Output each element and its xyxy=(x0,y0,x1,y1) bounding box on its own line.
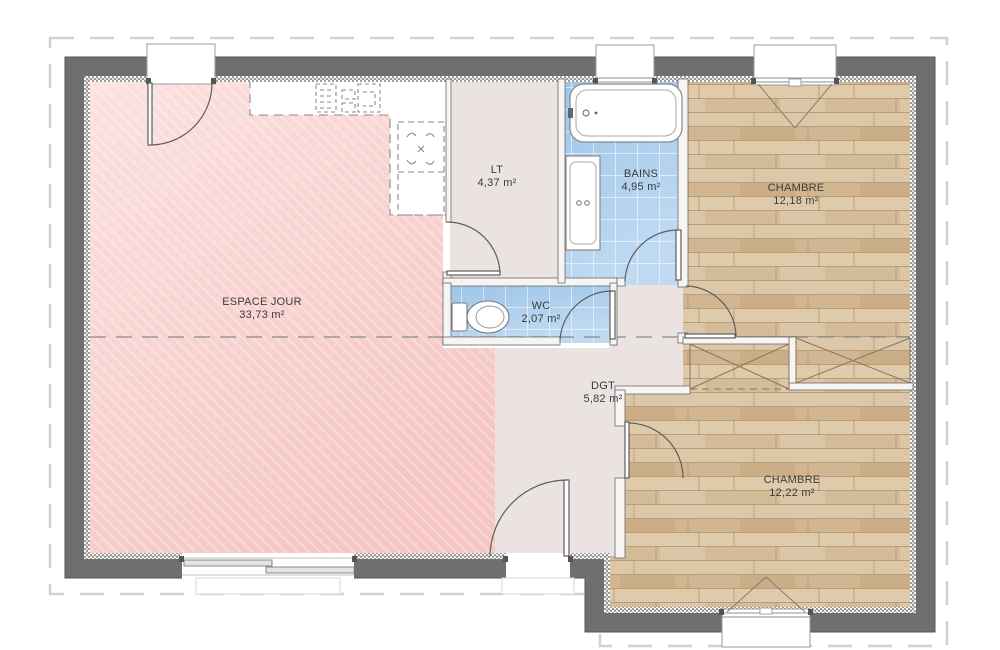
room-label-chambre-1: CHAMBRE 12,18 m² xyxy=(768,182,825,208)
room-area: 5,82 m² xyxy=(583,393,622,406)
fridge-symbol xyxy=(398,122,444,215)
room-area: 2,07 m² xyxy=(521,313,560,326)
room-area: 12,18 m² xyxy=(768,195,825,208)
chambre2-window xyxy=(722,609,810,647)
room-label-bains: BAINS 4,95 m² xyxy=(621,168,660,194)
room-name: CHAMBRE xyxy=(768,182,825,195)
floor-chambre-2 xyxy=(607,390,913,610)
room-name: LT xyxy=(477,164,516,177)
room-label-dgt: DGT 5,82 m² xyxy=(583,380,622,406)
room-label-chambre-2: CHAMBRE 12,22 m² xyxy=(764,474,821,500)
room-name: WC xyxy=(521,300,560,313)
bathtub xyxy=(568,84,682,142)
room-area: 33,73 m² xyxy=(222,309,302,322)
bay-threshold xyxy=(196,578,340,594)
toilet xyxy=(452,301,509,333)
room-area: 4,37 m² xyxy=(477,177,516,190)
entrance-opening xyxy=(147,44,215,84)
bay-sliding-panel-2 xyxy=(266,567,354,573)
kitchen-counter xyxy=(316,84,380,112)
floor-plan: ESPACE JOUR 33,73 m² LT 4,37 m² BAINS 4,… xyxy=(0,0,1000,650)
room-label-espace-jour: ESPACE JOUR 33,73 m² xyxy=(222,296,302,322)
dgt-threshold xyxy=(502,578,574,594)
room-label-lt: LT 4,37 m² xyxy=(477,164,516,190)
floor-plan-drawing xyxy=(0,0,1000,650)
room-area: 4,95 m² xyxy=(621,181,660,194)
room-name: CHAMBRE xyxy=(764,474,821,487)
room-area: 12,22 m² xyxy=(764,487,821,500)
room-name: ESPACE JOUR xyxy=(222,296,302,309)
dgt-door-opening xyxy=(506,553,570,578)
bains-window xyxy=(596,45,654,85)
room-label-wc: WC 2,07 m² xyxy=(521,300,560,326)
vanity xyxy=(566,156,600,250)
bay-sliding-panel-1 xyxy=(184,560,272,566)
room-name: BAINS xyxy=(621,168,660,181)
room-name: DGT xyxy=(583,380,622,393)
